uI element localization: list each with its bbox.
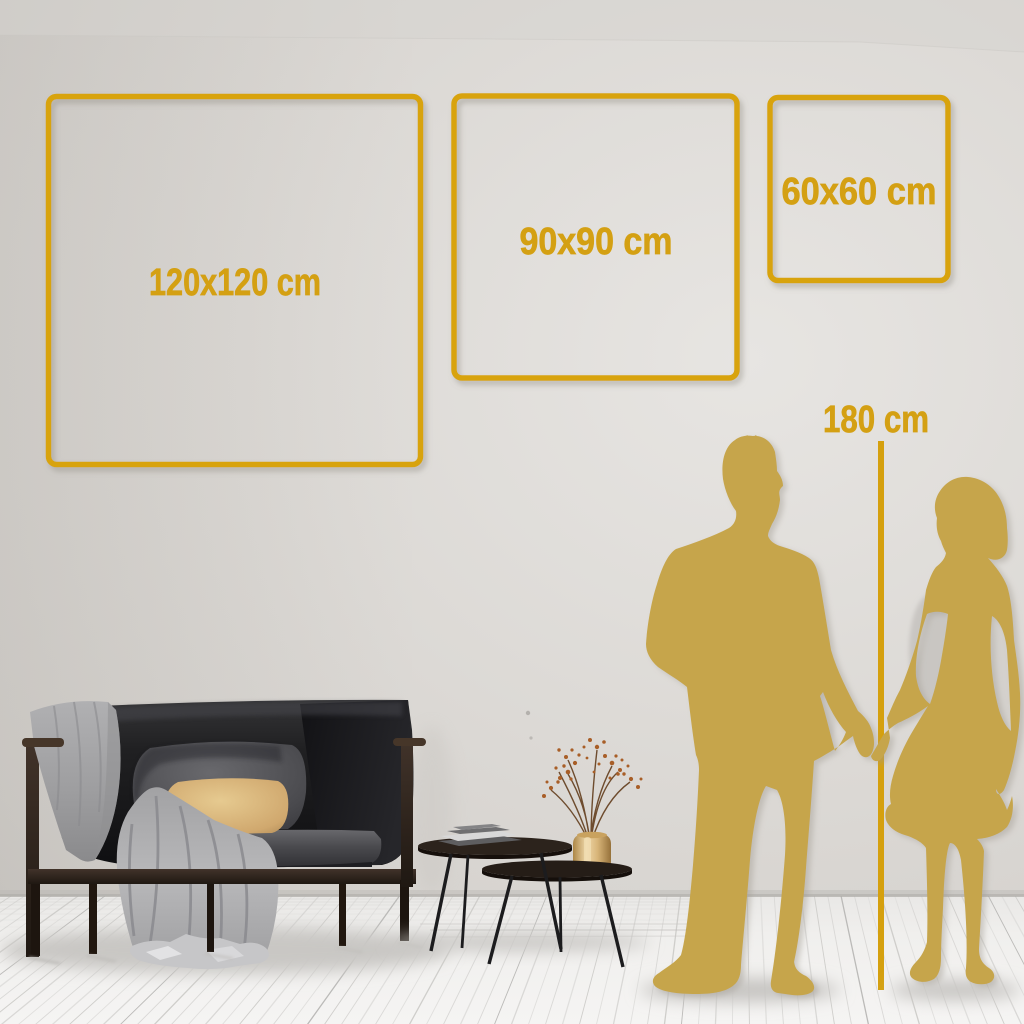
svg-text:120x120 cm: 120x120 cm — [149, 262, 321, 304]
svg-text:180 cm: 180 cm — [823, 399, 929, 441]
svg-text:90x90 cm: 90x90 cm — [520, 221, 673, 263]
svg-text:60x60 cm: 60x60 cm — [782, 171, 937, 213]
